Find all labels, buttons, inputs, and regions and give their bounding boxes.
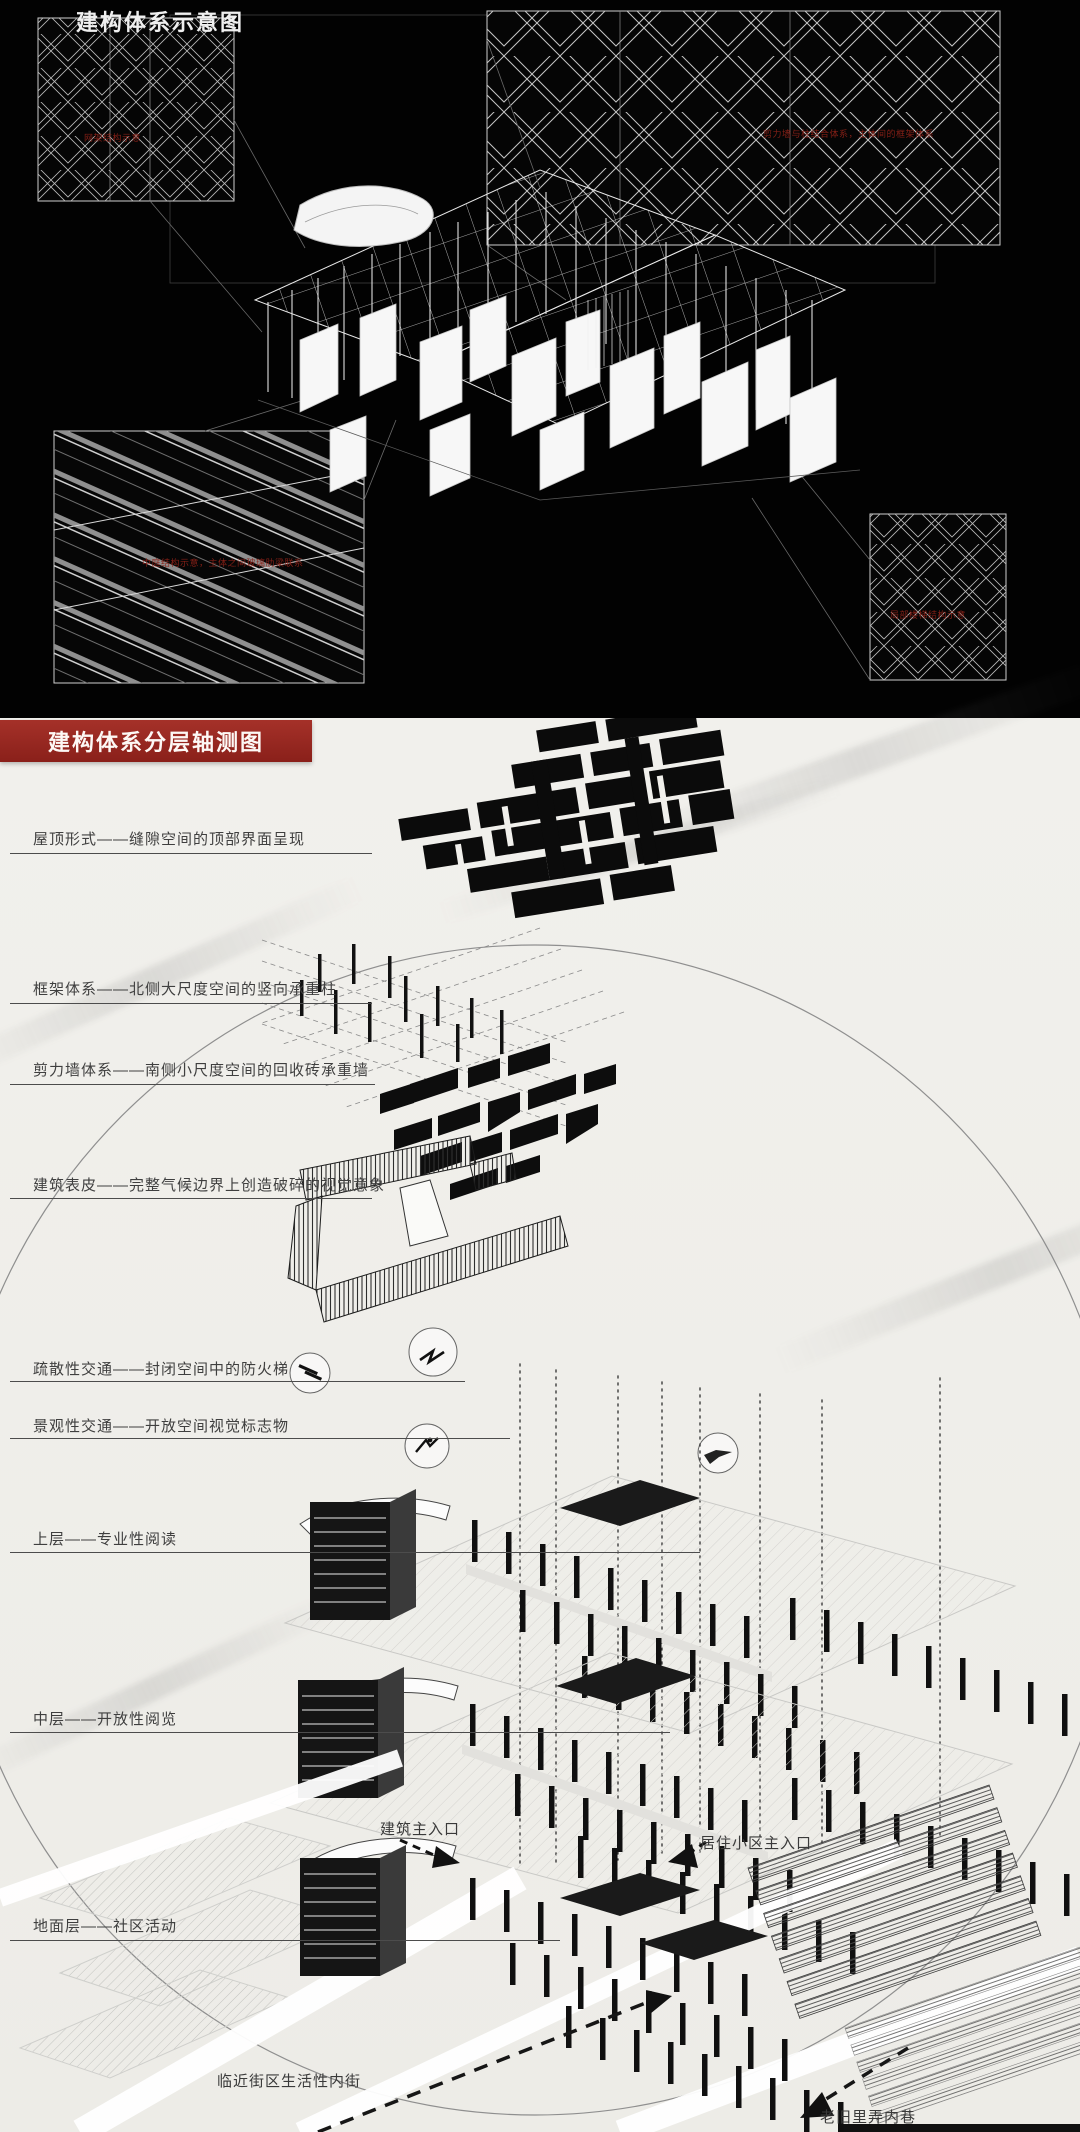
fire-stair-marker bbox=[409, 1328, 457, 1376]
label-frame-system: 框架体系——北侧大尺度空间的竖向承重柱 bbox=[33, 978, 337, 999]
label-escape-circulation: 疏散性交通——封闭空间中的防火梯 bbox=[33, 1358, 289, 1379]
label-building-entrance: 建筑主入口 bbox=[380, 1818, 460, 1839]
label-leader-line bbox=[10, 1003, 372, 1004]
landmark-marker bbox=[698, 1433, 738, 1473]
label-upper-level: 上层——专业性阅读 bbox=[33, 1528, 177, 1549]
label-middle-level: 中层——开放性阅览 bbox=[33, 1708, 177, 1729]
label-roof-form: 屋顶形式——缝隙空间的顶部界面呈现 bbox=[33, 828, 305, 849]
frame-layer-drawing bbox=[262, 928, 624, 1126]
note-shearwall-frame: 剪力墙与柱结合体系，主体间的框架体系 bbox=[763, 127, 934, 140]
presentation-board: 网架结构示意 剪力墙与柱结合体系，主体间的框架体系 中庭结构示意，主体之间玻璃肋… bbox=[0, 0, 1080, 2132]
label-street: 临近街区生活性内街 bbox=[217, 2070, 361, 2091]
roof-layer-drawing bbox=[388, 718, 744, 934]
label-leader-line bbox=[10, 853, 372, 854]
bottom-section-title: 建构体系分层轴测图 bbox=[48, 725, 264, 757]
label-landscape-circulation: 景观性交通——开放空间视觉标志物 bbox=[33, 1415, 289, 1436]
layered-axonometric-section: 屋顶形式——缝隙空间的顶部界面呈现 框架体系——北侧大尺度空间的竖向承重柱 剪力… bbox=[0, 718, 1080, 2132]
label-leader-line bbox=[10, 1198, 372, 1199]
label-leader-line bbox=[10, 1732, 670, 1733]
label-leader-line bbox=[10, 1084, 375, 1085]
label-leader-line bbox=[10, 1940, 560, 1941]
detail-box-stair-structure bbox=[870, 514, 1006, 680]
landmark-marker bbox=[405, 1424, 449, 1468]
note-stair: 局部楼梯结构示意 bbox=[890, 608, 966, 621]
fire-stair-marker bbox=[290, 1353, 330, 1393]
label-building-skin: 建筑表皮——完整气候边界上创造破碎的视觉意象 bbox=[33, 1174, 385, 1195]
label-ground-level: 地面层——社区活动 bbox=[33, 1915, 177, 1936]
street-route-arrow-icon bbox=[646, 1990, 672, 2014]
canopy-sheet bbox=[294, 186, 433, 247]
label-leader-line bbox=[10, 1381, 465, 1382]
detail-box-grid-structure bbox=[38, 18, 234, 201]
label-alley: 老旧里弄内巷 bbox=[820, 2106, 916, 2127]
tectonic-schematic-section: 网架结构示意 剪力墙与柱结合体系，主体间的框架体系 中庭结构示意，主体之间玻璃肋… bbox=[0, 0, 1080, 722]
note-atrium: 中庭结构示意，主体之间玻璃肋梁联系 bbox=[142, 556, 304, 569]
section-title-banner: 建构体系分层轴测图 bbox=[0, 720, 312, 762]
label-residential-entrance: 居住小区主入口 bbox=[700, 1832, 812, 1853]
label-leader-line bbox=[10, 1438, 510, 1439]
label-leader-line bbox=[10, 1552, 700, 1553]
top-section-title: 建构体系示意图 bbox=[76, 5, 244, 37]
note-grid-structure: 网架结构示意 bbox=[84, 131, 141, 144]
label-shearwall-system: 剪力墙体系——南侧小尺度空间的回收砖承重墙 bbox=[33, 1059, 369, 1080]
